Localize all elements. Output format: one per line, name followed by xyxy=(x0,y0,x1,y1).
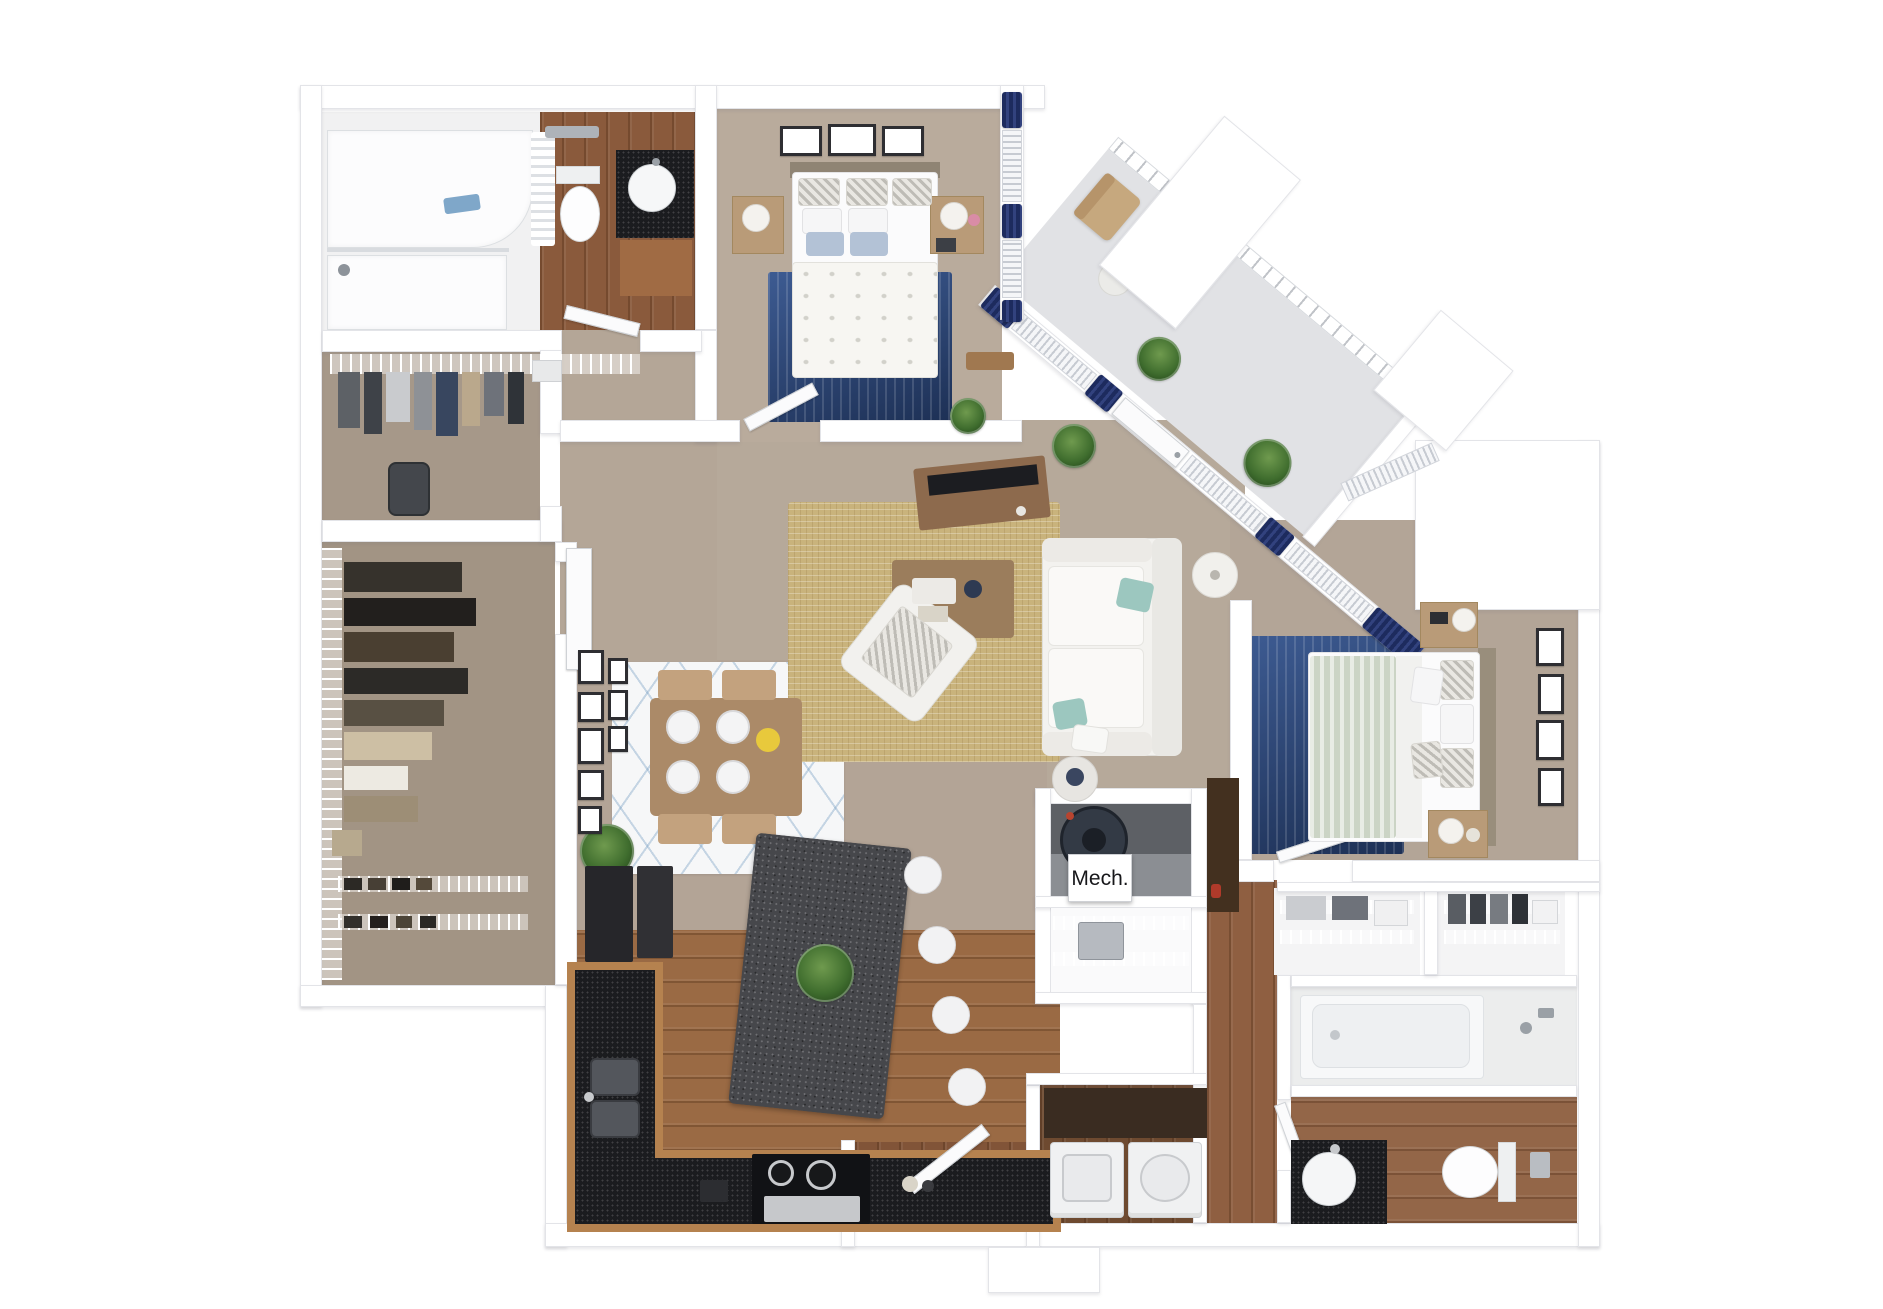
closet-a-clothes-7 xyxy=(484,372,504,416)
bedroom1-pillow-blue-2 xyxy=(850,232,888,256)
bedroom1-pillow-2 xyxy=(846,178,888,206)
entry-stoop xyxy=(988,1247,1100,1293)
bedroom2-frame-4 xyxy=(1538,768,1564,806)
bedroom2-bottom-wall-right xyxy=(1352,860,1600,882)
bedroom1-pillow-white-1 xyxy=(802,208,842,234)
sofa-arm-top xyxy=(1042,538,1152,562)
bedroom1-curtain-top xyxy=(1002,92,1022,128)
closet-a-clothes-6 xyxy=(462,372,480,426)
bedroom1-curtain-mid xyxy=(1002,204,1022,238)
fire-extinguisher xyxy=(1211,884,1221,898)
hall-bath2-wall-upper xyxy=(1277,975,1291,1100)
shower-head xyxy=(1538,1008,1554,1018)
bath2-faucet xyxy=(1330,1144,1340,1154)
bath1-toilet-tank xyxy=(556,166,600,184)
cubby1-bin-2 xyxy=(1332,896,1368,920)
bedroom1-bottom-wall-right xyxy=(820,420,1022,442)
bedroom2-topright-wall xyxy=(1415,440,1600,610)
dining-chair-3 xyxy=(658,814,712,844)
laundry-top-wall xyxy=(1026,1073,1207,1085)
bedroom1-flowers xyxy=(968,214,980,226)
bedroom2-pillow-1 xyxy=(1440,660,1474,700)
bedroom2-frame-2 xyxy=(1538,674,1564,714)
bedroom1-tablet xyxy=(936,238,956,252)
gallery-frame-6 xyxy=(608,658,628,684)
mech-wall-bottom xyxy=(1035,992,1207,1004)
bedroom2-pillow-2 xyxy=(1440,704,1474,744)
closet-b-bag-1 xyxy=(344,732,432,760)
closets-tub-wall xyxy=(1291,975,1577,987)
water-heater-valve xyxy=(1066,812,1074,820)
kitchen-faucet xyxy=(584,1092,594,1102)
dining-chair-2 xyxy=(722,670,776,700)
bedroom2-lamp-bottom xyxy=(1438,818,1464,844)
floorplan: Mech. xyxy=(0,0,1883,1309)
bedroom2-frame-3 xyxy=(1536,720,1564,760)
living-plant xyxy=(1052,424,1096,468)
shoe-4 xyxy=(416,878,432,890)
kitchen-jar-2 xyxy=(922,1180,934,1192)
dining-plate-3 xyxy=(666,760,700,794)
bedroom2-pillow-4 xyxy=(1410,666,1445,706)
bath1-glass-line xyxy=(327,248,509,252)
gallery-frame-8 xyxy=(608,726,628,752)
hall-right-wood-floor xyxy=(1207,880,1277,1223)
dining-chair-1 xyxy=(658,670,712,700)
dryer-door xyxy=(1140,1154,1190,1202)
island-plant xyxy=(796,944,854,1002)
closet-a-clothes-3 xyxy=(386,372,410,422)
cubby2-clothes-2 xyxy=(1470,894,1486,924)
laundry-back-panel xyxy=(1044,1088,1207,1138)
bedroom1-duvet xyxy=(792,262,938,378)
bath1-toilet-bowl xyxy=(560,186,600,242)
bedroom2-flowers xyxy=(1466,828,1480,842)
bedroom2-pillow-3 xyxy=(1440,748,1474,788)
gallery-frame-5 xyxy=(578,806,602,834)
closet-a-clothes-1 xyxy=(338,372,360,428)
outer-wall-left xyxy=(300,85,322,1007)
cubby2-clothes-3 xyxy=(1490,894,1508,924)
closet-b-right-wall-bottom xyxy=(555,634,577,985)
shoe-7 xyxy=(396,916,412,928)
kitchen-jar-1 xyxy=(902,1176,918,1192)
closet-a-clothes-2 xyxy=(364,372,382,434)
closet-b-shoe-shelf-1 xyxy=(338,876,528,892)
bath1-bedroom1-wall xyxy=(695,85,717,330)
gallery-frame-2 xyxy=(578,692,604,722)
island-stool-1 xyxy=(904,856,942,894)
bedroom1-pillow-1 xyxy=(798,178,840,206)
shoe-1 xyxy=(344,878,362,890)
closet-b-bag-3 xyxy=(344,796,418,822)
mech-steel-box xyxy=(1078,922,1124,960)
sofa-back xyxy=(1152,538,1182,756)
closet-a-clothes-4 xyxy=(414,372,432,430)
floor-lamp-center xyxy=(1210,570,1220,580)
closet-a-clothes-5 xyxy=(436,372,458,436)
mech-label: Mech. xyxy=(1068,854,1132,902)
console-decor xyxy=(1016,506,1026,516)
bath1-faucet xyxy=(652,158,660,166)
closet-a-shelf xyxy=(330,354,640,374)
oven-door xyxy=(764,1196,860,1222)
gallery-frame-1 xyxy=(578,650,604,684)
bath1-shower-curtain xyxy=(531,132,555,246)
tub-bath2-wall xyxy=(1291,1085,1577,1097)
bath1-shower2-stall xyxy=(327,255,507,330)
closet-b-hatbox xyxy=(332,830,362,856)
leftwing-bottom-wall xyxy=(300,985,560,1007)
coffee-table-tray xyxy=(912,578,956,604)
closet-a-bottom-wall xyxy=(322,520,562,542)
stove-burner-1 xyxy=(768,1160,794,1186)
closet-b-bag-2 xyxy=(344,766,408,790)
gallery-frame-7 xyxy=(608,690,628,720)
coffee-table-book xyxy=(918,606,948,622)
bedroom1-frame-2 xyxy=(828,124,876,156)
bath2-sink xyxy=(1302,1152,1356,1206)
bath2-toilet-bowl xyxy=(1442,1146,1498,1198)
bath2-toilet-tank xyxy=(1498,1142,1516,1202)
closet-b-coat-2 xyxy=(344,598,476,626)
shoe-5 xyxy=(344,916,362,928)
bath1-bottom-wall-left xyxy=(322,330,562,352)
kitchen-upper-cabinet xyxy=(637,866,673,958)
bedroom1-pillow-3 xyxy=(892,178,932,206)
bath1-vanity-cabinet xyxy=(620,240,692,296)
bedroom1-pillow-white-2 xyxy=(848,208,888,234)
dining-plate-1 xyxy=(666,710,700,744)
utility-top-wall xyxy=(1277,882,1600,892)
cubby2-wire-2 xyxy=(1444,930,1560,944)
bedroom2-blanket xyxy=(1310,656,1396,838)
bedroom1-plant xyxy=(950,398,986,434)
closet-b-coat-3 xyxy=(344,632,454,662)
cubby2-clothes-4 xyxy=(1512,894,1528,924)
closet-b-coat-5 xyxy=(344,700,444,726)
coffee-maker xyxy=(700,1180,728,1202)
closet-a-right-wall-lower xyxy=(540,506,562,542)
gallery-frame-3 xyxy=(578,728,604,764)
kitchen-sink-2 xyxy=(590,1100,640,1138)
shoe-2 xyxy=(368,878,386,890)
cubby2-box xyxy=(1532,900,1558,924)
bath1-bottom-wall-right xyxy=(640,330,702,352)
hall-bath2-wall-lower xyxy=(1277,1170,1291,1223)
coffee-table-vase xyxy=(964,580,982,598)
kitchen-left-wall xyxy=(545,985,567,1247)
dining-flowers xyxy=(756,728,780,752)
kitchen-sink-1 xyxy=(590,1058,640,1096)
cubby1-bin-1 xyxy=(1286,896,1326,920)
stove-burner-2 xyxy=(806,1160,836,1190)
bath1-shower-head xyxy=(338,264,350,276)
shower-valve xyxy=(1520,1022,1532,1034)
bath1-shower-stall xyxy=(327,130,533,248)
water-heater-cap xyxy=(1082,828,1106,852)
island-stool-2 xyxy=(918,926,956,964)
closet-b-coat-4 xyxy=(344,668,468,694)
bath2-tp-holder xyxy=(1530,1152,1550,1178)
bedroom2-frame-1 xyxy=(1536,628,1564,666)
shoe-8 xyxy=(420,916,436,928)
shoe-6 xyxy=(370,916,388,928)
island-stool-4 xyxy=(948,1068,986,1106)
cubby-divider-wall xyxy=(1424,882,1438,975)
bedroom1-curtain-bottom xyxy=(1002,300,1022,322)
bedroom2-pillow-5 xyxy=(1410,741,1444,780)
closet-a-box xyxy=(532,360,562,382)
bedroom1-lamp-right xyxy=(940,202,968,230)
shoe-3 xyxy=(392,878,410,890)
bedroom1-frame-3 xyxy=(882,126,924,156)
sofa-pillow-white xyxy=(1070,724,1109,755)
bathtub-drain xyxy=(1330,1030,1340,1040)
bath1-sink xyxy=(628,164,676,212)
washer-door xyxy=(1062,1154,1112,1202)
closet-a-clothes-8 xyxy=(508,372,524,424)
dining-plate-2 xyxy=(716,710,750,744)
cubby1-box xyxy=(1374,900,1408,926)
bedroom1-bottom-wall-left xyxy=(560,420,740,442)
bedroom2-phone xyxy=(1430,612,1448,624)
bedroom1-frame-1 xyxy=(780,126,822,156)
island-stool-3 xyxy=(932,996,970,1034)
bath1-towel-bar xyxy=(545,126,599,138)
bedroom1-bench xyxy=(966,352,1014,370)
bedroom1-window-2 xyxy=(1002,240,1022,298)
floorplan-canvas: Mech. xyxy=(0,0,1883,1309)
side-table-vase xyxy=(1066,768,1084,786)
closet-a-suitcase xyxy=(388,462,430,516)
fridge xyxy=(585,866,633,962)
closet-b-coat-1 xyxy=(344,562,462,592)
cubby1-wire-2 xyxy=(1280,930,1414,944)
bedroom1-window-1 xyxy=(1002,130,1022,202)
cubby2-clothes-1 xyxy=(1448,894,1466,924)
dining-plate-4 xyxy=(716,760,750,794)
bedroom1-pillow-blue-1 xyxy=(806,232,844,256)
gallery-frame-4 xyxy=(578,770,604,800)
bedroom2-lamp-top xyxy=(1452,608,1476,632)
outer-wall-top xyxy=(300,85,1045,109)
bedroom1-lamp-left xyxy=(742,204,770,232)
